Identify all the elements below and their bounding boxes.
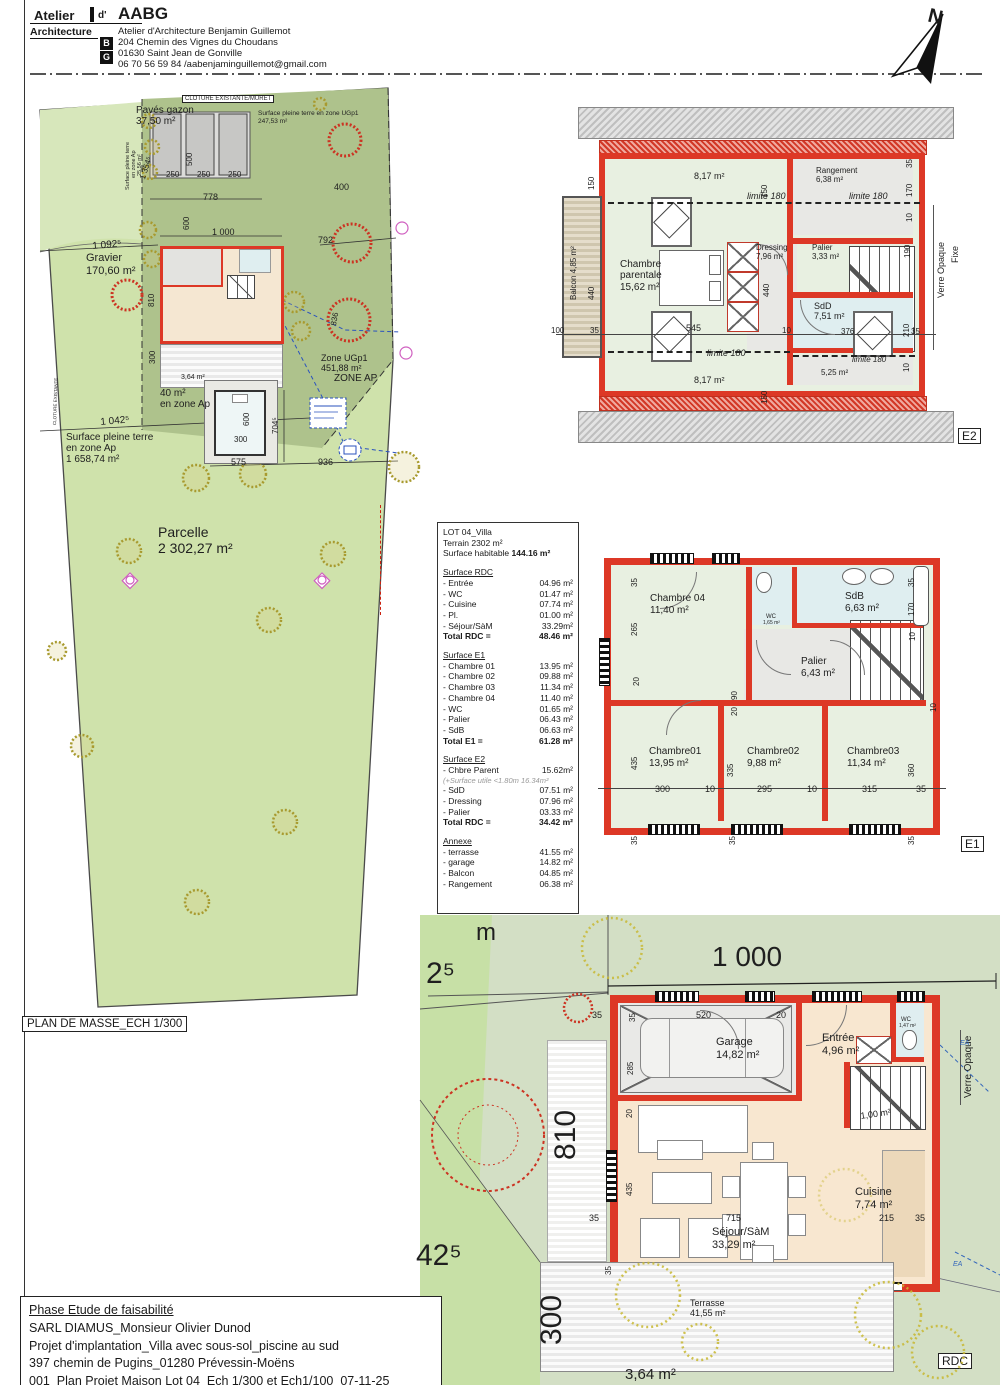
dim-label: Surface pleine terre bbox=[66, 433, 153, 444]
dim-label: Zone UGp1 bbox=[321, 354, 368, 363]
dim-label: Surface pleine terre en zone UGp1 bbox=[258, 111, 358, 118]
surface-sections: Surface RDC- Entrée04.96 m²- WC01.47 m²-… bbox=[443, 567, 573, 889]
address-line1: 204 Chemin des Vignes du Choudans bbox=[118, 37, 278, 48]
chair bbox=[788, 1176, 806, 1198]
dim-label: en zone Ap bbox=[66, 444, 116, 455]
surface-row: - Cuisine07.74 m² bbox=[443, 599, 573, 610]
surface-row: - Dressing07.96 m² bbox=[443, 796, 573, 807]
surface-row: - Chambre 0311.34 m² bbox=[443, 682, 573, 693]
e2-wall-band-bottom bbox=[599, 396, 927, 411]
site-pool bbox=[214, 390, 266, 456]
dim-label: CLOTURE EXISTANTE/MURET bbox=[182, 95, 274, 103]
rdc-window bbox=[606, 1150, 617, 1202]
e1-window bbox=[648, 824, 700, 835]
armchair bbox=[640, 1218, 680, 1258]
dim-label: Verre Opaque bbox=[964, 1036, 975, 1098]
rdc-wall bbox=[618, 1095, 802, 1101]
dim-label: 150 bbox=[588, 177, 596, 190]
logo-divider bbox=[90, 7, 94, 22]
e1-bathtub bbox=[913, 566, 929, 626]
rdc-window bbox=[745, 991, 775, 1002]
rdc-side-path bbox=[547, 1040, 607, 1262]
rdc-window bbox=[897, 991, 925, 1002]
dim-label: 250 bbox=[197, 171, 210, 179]
e1-toilet bbox=[756, 572, 772, 593]
e2-wall bbox=[793, 292, 913, 298]
rdc-wall bbox=[890, 1057, 924, 1062]
brand-name: AABG bbox=[118, 4, 168, 24]
rdc-wall bbox=[844, 1062, 850, 1128]
surface-section-heading: Annexe bbox=[443, 836, 573, 847]
e2-bed bbox=[659, 250, 724, 306]
rdc-stairs bbox=[850, 1066, 926, 1130]
surface-note: (+Surface utile <1.80m 16.34m² bbox=[443, 776, 573, 785]
surface-row: - Séjour/SàM33.29m² bbox=[443, 621, 573, 632]
dim-label: 778 bbox=[203, 193, 218, 202]
dim-label: 35 bbox=[592, 1011, 602, 1020]
dim-label: Verre Opaque bbox=[937, 242, 946, 298]
logo-g-box: G bbox=[100, 51, 113, 64]
dim-label: 836 bbox=[330, 312, 341, 327]
chair bbox=[752, 1142, 774, 1160]
e1-wall bbox=[822, 706, 828, 821]
surface-row: - Balcon04.85 m² bbox=[443, 868, 573, 879]
dim-label: 792 bbox=[318, 236, 333, 245]
dim-label: 250 bbox=[166, 171, 179, 179]
dim-label: 936 bbox=[318, 458, 333, 467]
rdc-glazing-line bbox=[960, 1030, 961, 1105]
surface-row: - Chambre 0113.95 m² bbox=[443, 661, 573, 672]
dim-label: CLOTURE EXISTANTE bbox=[53, 378, 59, 426]
surface-row: - WC01.65 m² bbox=[443, 704, 573, 715]
parcel-label: Parcelle bbox=[158, 525, 209, 540]
surface-row: - Chambre 0411.40 m² bbox=[443, 693, 573, 704]
dim-label: EA bbox=[953, 1261, 962, 1268]
drawing-sheet: Atelier d' Architecture B G AABG Atelier… bbox=[0, 0, 1000, 1385]
dim-label: en zone Ap bbox=[160, 400, 210, 411]
rdc-wc-toilet bbox=[902, 1030, 917, 1050]
surface-total: Total RDC =48.46 m² bbox=[443, 631, 573, 642]
surface-total: Total E1 =61.28 m² bbox=[443, 736, 573, 747]
firm-name: Atelier d'Architecture Benjamin Guillemo… bbox=[118, 26, 290, 37]
e1-sink bbox=[842, 568, 866, 585]
surface-table: LOT 04_Villa Terrain 2302 m² Surface hab… bbox=[437, 522, 579, 914]
e1-wall bbox=[746, 567, 752, 703]
parcel-area: 2 302,27 m² bbox=[158, 541, 233, 556]
dim-label: 25,56 m² bbox=[138, 154, 144, 176]
logo-rule2 bbox=[30, 38, 98, 39]
e2-roof-band-top bbox=[578, 107, 954, 139]
client-line: SARL DIAMUS_Monsieur Olivier Dunod bbox=[29, 1320, 433, 1338]
address-line2: 01630 Saint Jean de Gonville bbox=[118, 48, 242, 59]
site-house-footprint bbox=[160, 246, 284, 344]
dim-label: en zone Ap bbox=[132, 150, 138, 178]
terrain-line: Terrain 2302 m² bbox=[443, 538, 573, 549]
dim-label: m bbox=[476, 920, 496, 945]
rdc-window bbox=[812, 991, 862, 1002]
site-plan-title: PLAN DE MASSE_ECH 1/300 bbox=[22, 1016, 187, 1032]
e1-window bbox=[849, 824, 901, 835]
dim-label: Surface pleine terre bbox=[126, 142, 132, 190]
logo-b-box: B bbox=[100, 37, 113, 50]
dim-label: 1 000 bbox=[712, 942, 782, 971]
dim-label: Fixe bbox=[951, 246, 960, 263]
red-limit-line bbox=[380, 505, 381, 615]
e2-skylight bbox=[651, 197, 692, 247]
dim-label: 400 bbox=[334, 183, 349, 192]
dim-label: 1 354⁵ bbox=[139, 156, 154, 181]
title-block: Atelier d' Architecture B G AABG Atelier… bbox=[30, 6, 410, 72]
e1-wall bbox=[611, 700, 926, 706]
e1-dim-line bbox=[598, 788, 946, 789]
north-arrow bbox=[885, 4, 960, 89]
dim-label: 35 bbox=[729, 836, 737, 845]
rdc-wall bbox=[796, 1003, 802, 1095]
rdc-closet bbox=[856, 1036, 892, 1064]
rdc-cuisine bbox=[882, 1150, 925, 1277]
e2-window-line bbox=[933, 205, 934, 350]
logo-architecture: Architecture bbox=[30, 26, 92, 38]
project-info-block: Phase Etude de faisabilité SARL DIAMUS_M… bbox=[20, 1296, 442, 1385]
dim-label: 1 000 bbox=[212, 228, 235, 237]
surface-row: - Palier06.43 m² bbox=[443, 714, 573, 725]
chair bbox=[722, 1176, 740, 1198]
site-garage bbox=[163, 249, 223, 287]
e2-skylight bbox=[651, 311, 692, 362]
chair bbox=[752, 1245, 774, 1263]
sheet-left-border bbox=[24, 0, 25, 1385]
surface-row: - Palier03.33 m² bbox=[443, 807, 573, 818]
surface-row: - SdB06.63 m² bbox=[443, 725, 573, 736]
surface-row: - Entrée04.96 m² bbox=[443, 578, 573, 589]
e2-attic-space bbox=[793, 356, 913, 385]
dim-label: 40 m² bbox=[160, 389, 186, 400]
e1-wall bbox=[792, 623, 923, 628]
dim-label: 35 bbox=[908, 836, 916, 845]
e2-tag: E2 bbox=[958, 428, 981, 444]
e2-rangement bbox=[793, 159, 913, 235]
tv-stand bbox=[657, 1140, 703, 1160]
dim-label: Gravier bbox=[86, 253, 122, 265]
dim-label: 810 bbox=[148, 294, 156, 307]
logo-atelier: Atelier bbox=[34, 8, 74, 23]
phase-line: Phase Etude de faisabilité bbox=[29, 1302, 433, 1320]
e2-closets bbox=[727, 242, 757, 328]
e1-wall bbox=[792, 567, 797, 623]
dim-label: 500 bbox=[186, 153, 194, 166]
dim-label: 250 bbox=[228, 171, 241, 179]
e1-window bbox=[599, 638, 610, 686]
surface-row: - WC01.47 m² bbox=[443, 589, 573, 600]
coffee-table bbox=[652, 1172, 712, 1204]
project-line: Projet d'implantation_Villa avec sous-so… bbox=[29, 1338, 433, 1356]
surface-row: - Rangement06.38 m² bbox=[443, 879, 573, 890]
pool-steps bbox=[232, 394, 248, 403]
site-room bbox=[239, 249, 271, 273]
dim-label: 170,60 m² bbox=[86, 266, 136, 278]
dim-label: ZONE AP bbox=[334, 374, 377, 385]
surface-section-heading: Surface E2 bbox=[443, 754, 573, 765]
dim-label: 600 bbox=[183, 217, 191, 230]
e2-wall bbox=[793, 238, 913, 244]
e1-tag: E1 bbox=[961, 836, 984, 852]
dim-label: 1 092⁵ bbox=[92, 239, 122, 252]
surface-section-heading: Surface E1 bbox=[443, 650, 573, 661]
dim-label: 2⁵ bbox=[426, 958, 455, 990]
surface-total: Total RDC =34.42 m² bbox=[443, 817, 573, 828]
drawing-ref-line: 001_Plan Projet Maison Lot 04_Ech 1/300 … bbox=[29, 1373, 433, 1385]
dim-label: 37,50 m² bbox=[136, 117, 175, 128]
chair bbox=[788, 1214, 806, 1236]
e1-wall bbox=[718, 706, 724, 821]
site-address-line: 397 chemin de Pugins_01280 Prévessin-Moë… bbox=[29, 1355, 433, 1373]
surface-row: - Chambre 0209.88 m² bbox=[443, 671, 573, 682]
site-stairs bbox=[227, 275, 255, 299]
e1-window bbox=[731, 824, 783, 835]
limite-180-line bbox=[608, 202, 920, 204]
e2-roof-band-bottom bbox=[578, 411, 954, 443]
surface-row: - terrasse41.55 m² bbox=[443, 847, 573, 858]
habitable-line: Surface habitable 144.16 m² bbox=[443, 548, 573, 559]
logo-d: d' bbox=[98, 10, 107, 21]
dim-label: EA bbox=[960, 1040, 969, 1047]
surface-row: - Chbre Parent15.62m² bbox=[443, 765, 573, 776]
rdc-tag: RDC bbox=[938, 1353, 972, 1369]
surface-section-heading: Surface RDC bbox=[443, 567, 573, 578]
dim-label: 1 042⁵ bbox=[100, 415, 130, 428]
dim-label: 42⁵ bbox=[416, 1240, 462, 1272]
e1-window bbox=[650, 553, 694, 564]
dim-label: 247,53 m² bbox=[258, 119, 287, 126]
dim-label: Pavés gazon bbox=[136, 106, 194, 117]
e2-dim-line bbox=[556, 334, 936, 335]
dim-label: 1 658,74 m² bbox=[66, 455, 119, 466]
limite-180-line bbox=[608, 351, 790, 353]
e1-sink bbox=[870, 568, 894, 585]
surface-row: - Pl.01.00 m² bbox=[443, 610, 573, 621]
lot-title: LOT 04_Villa bbox=[443, 527, 573, 538]
dim-label: 300 bbox=[149, 351, 157, 364]
property-limit-line bbox=[30, 73, 985, 75]
dim-label: 451,88 m² bbox=[321, 364, 362, 373]
limite-180-line bbox=[793, 355, 915, 357]
rdc-window bbox=[655, 991, 699, 1002]
chair bbox=[722, 1214, 740, 1236]
contact-line: 06 70 56 59 84 /aabenjaminguillemot@gmai… bbox=[118, 59, 327, 70]
rdc-terrasse bbox=[540, 1262, 894, 1372]
surface-row: - garage14.82 m² bbox=[443, 857, 573, 868]
dim-label: 35 bbox=[631, 836, 639, 845]
e1-window bbox=[712, 553, 740, 564]
surface-row: - SdD07.51 m² bbox=[443, 785, 573, 796]
